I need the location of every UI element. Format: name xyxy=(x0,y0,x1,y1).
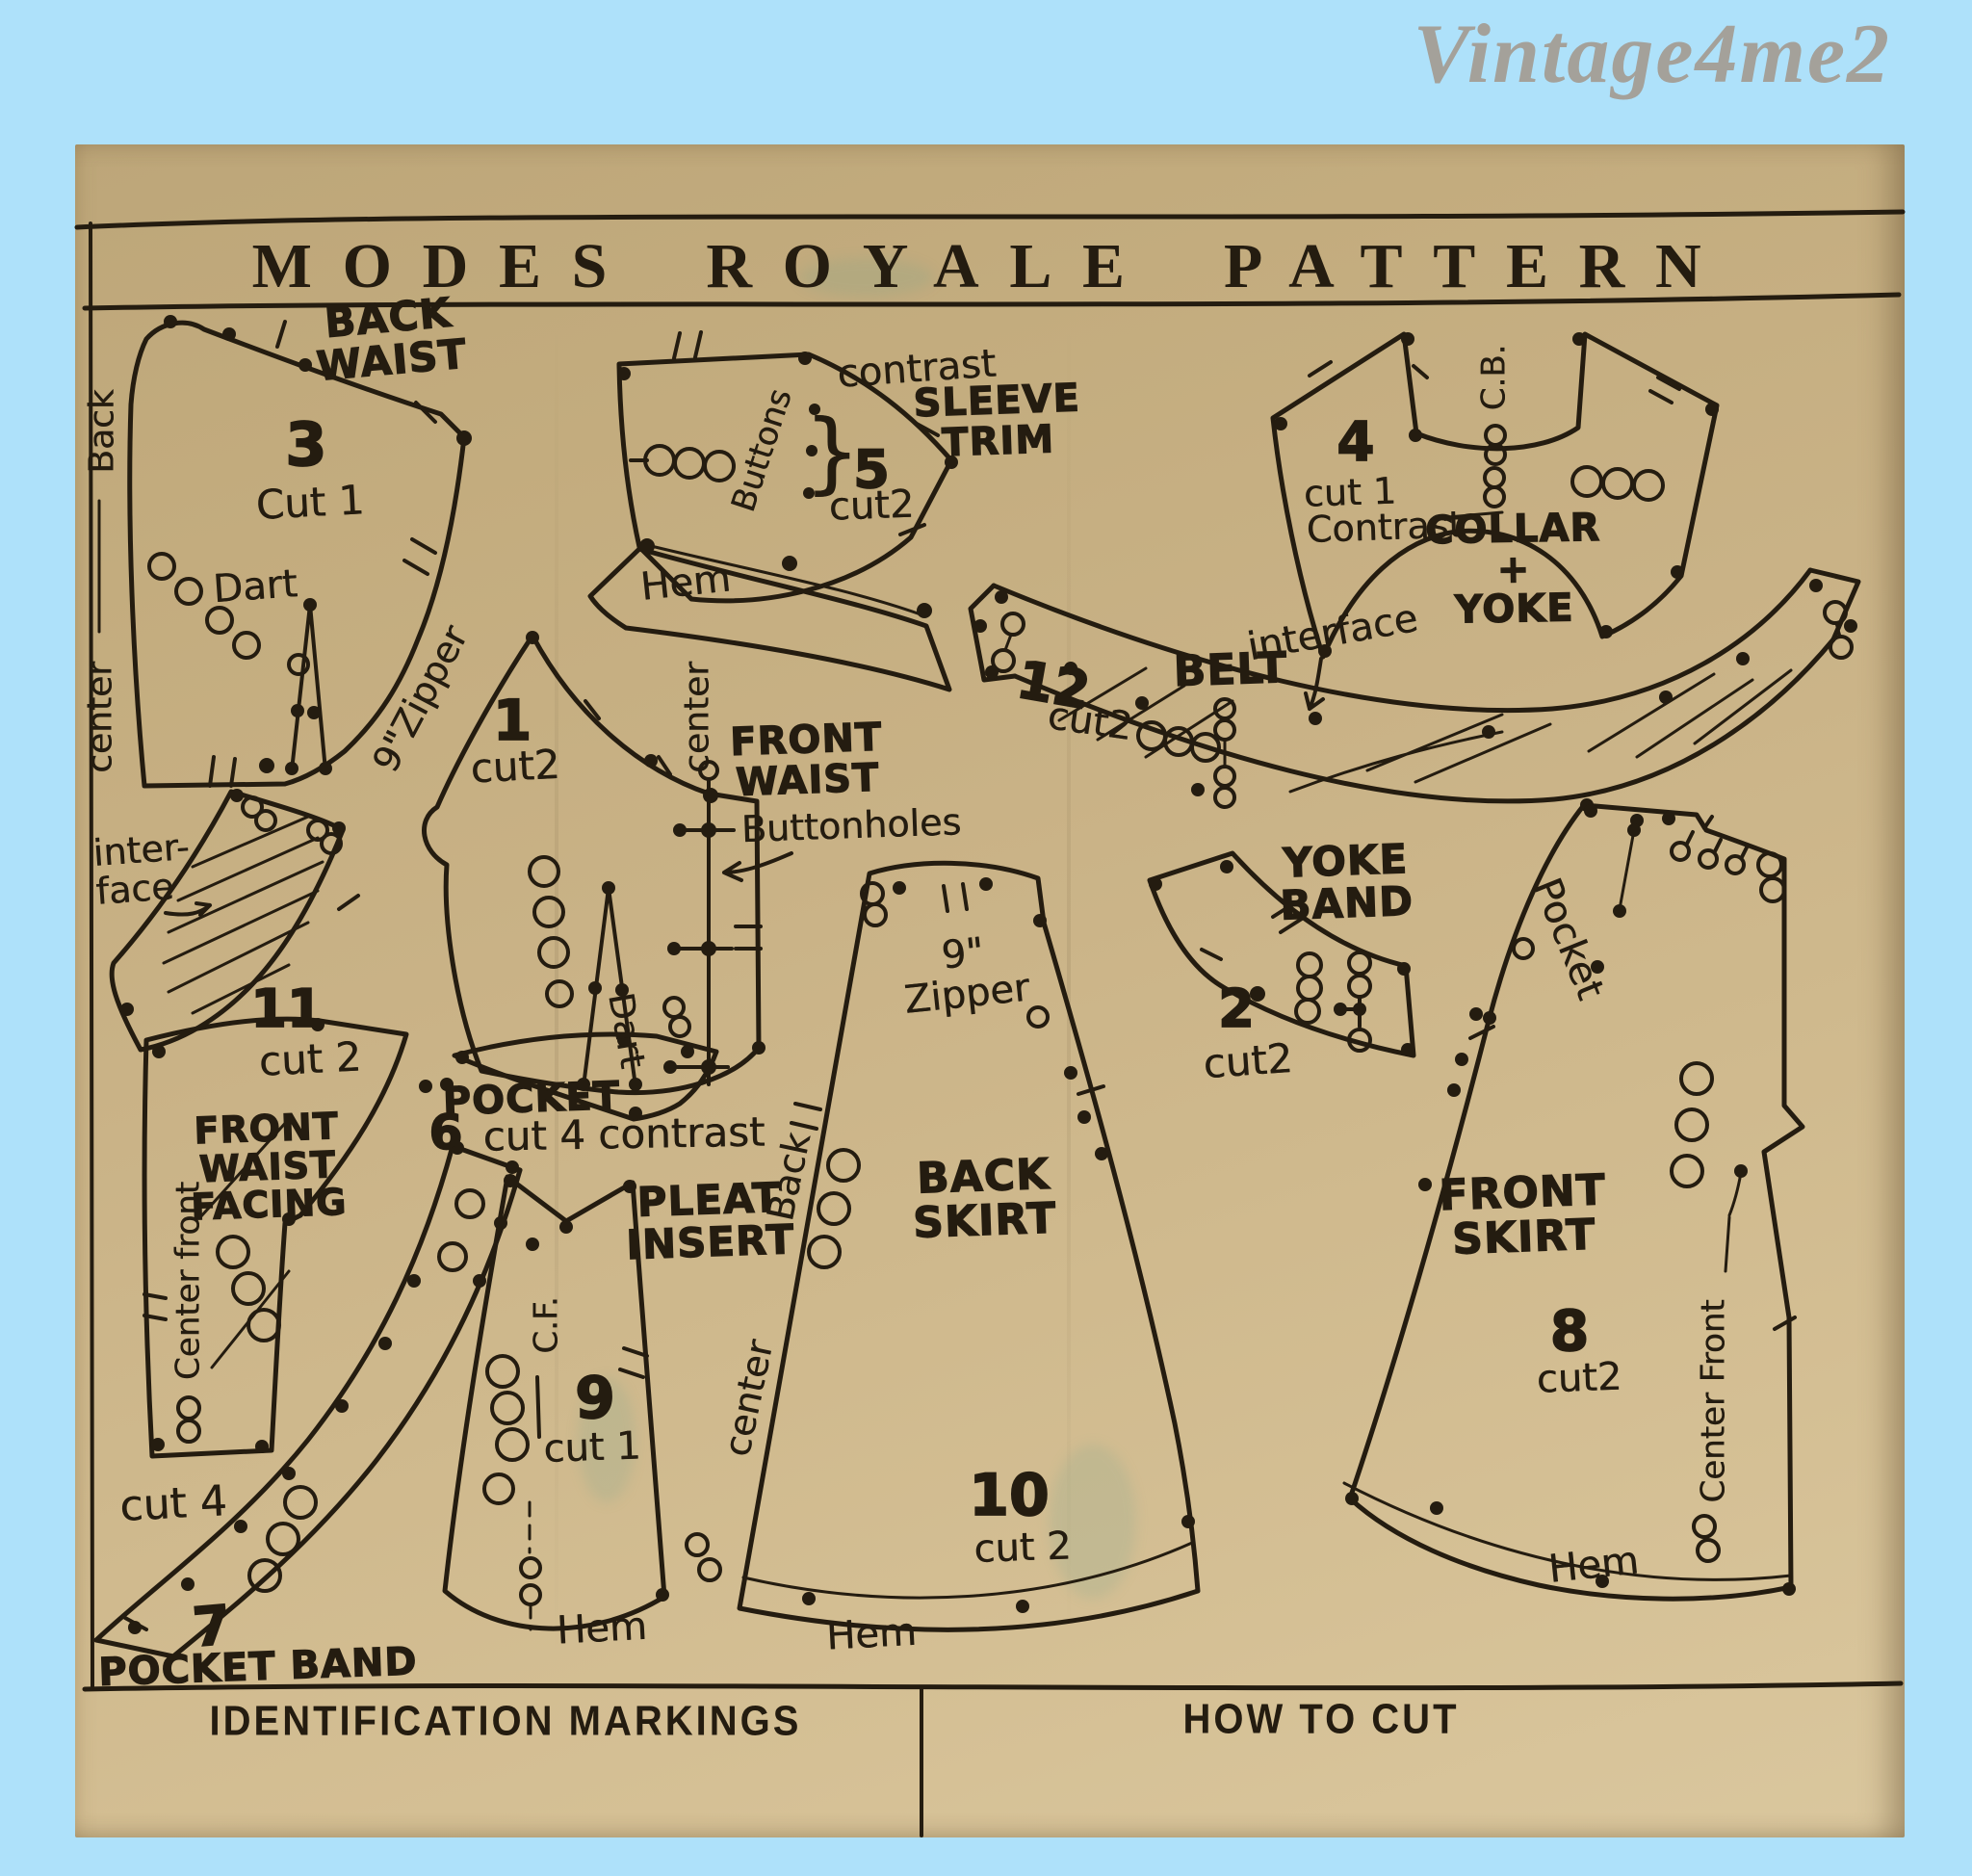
front-skirt-center-front: Center Front xyxy=(1697,1299,1730,1502)
front-skirt-hem: Hem xyxy=(1546,1541,1640,1590)
back-skirt-number: 10 xyxy=(969,1466,1050,1525)
pocket-band-cut: cut 4 xyxy=(118,1479,228,1529)
front-skirt-number: 8 xyxy=(1550,1302,1589,1360)
back-skirt-title: BACK SKIRT xyxy=(911,1153,1057,1246)
back-waist-title: BACK WAIST xyxy=(311,291,469,388)
interfacing-label: inter- face xyxy=(91,828,193,911)
sleeve-trim-title: SLEEVE TRIM xyxy=(913,378,1082,464)
front-waist-cut: cut2 xyxy=(469,743,560,790)
yoke-band-number: 2 xyxy=(1218,982,1255,1036)
back-skirt-zipper: 9" Zipper xyxy=(898,928,1031,1021)
back-skirt-hem: Hem xyxy=(825,1613,918,1657)
sleeve-trim-cut: cut2 xyxy=(828,485,915,529)
collar-yoke-title: COLLAR + YOKE xyxy=(1425,508,1602,632)
front-waist-center-label: center xyxy=(679,662,714,773)
interfacing-number: 11 xyxy=(250,982,323,1036)
interfacing-cut: cut 2 xyxy=(258,1035,362,1082)
front-waist-number: 1 xyxy=(493,691,532,749)
pleat-insert-cut: cut 1 xyxy=(543,1426,642,1470)
pocket-number: 6 xyxy=(429,1107,463,1158)
back-waist-cut: Cut 1 xyxy=(255,479,366,526)
footer-left-heading: IDENTIFICATION MARKINGS xyxy=(210,1699,802,1746)
facing-center-front: Center front xyxy=(171,1182,205,1380)
pleat-insert-number: 9 xyxy=(575,1368,615,1428)
front-skirt-title: FRONT SKIRT xyxy=(1439,1168,1608,1262)
scanned-pattern-sheet: Vintage4me2 xyxy=(0,0,1972,1876)
back-waist-edge-center: center xyxy=(82,662,117,773)
pleat-insert-cf: C.F. xyxy=(530,1296,563,1353)
footer-right-heading: HOW TO CUT xyxy=(1182,1697,1459,1744)
front-waist-facing-title: FRONT WAIST FACING xyxy=(188,1107,348,1227)
collar-yoke-cb: C.B. xyxy=(1477,345,1511,411)
back-waist-dart-label: Dart xyxy=(212,564,298,611)
collar-yoke-number: 4 xyxy=(1337,415,1375,471)
yoke-band-cut: cut2 xyxy=(1202,1037,1294,1085)
sleeve-trim-hem: Hem xyxy=(638,559,732,608)
front-skirt-cut: cut2 xyxy=(1536,1358,1622,1401)
back-waist-number: 3 xyxy=(285,414,326,476)
back-skirt-cut: cut 2 xyxy=(973,1526,1073,1570)
front-waist-title: FRONT WAIST xyxy=(730,718,885,804)
pocket-cut: cut 4 contrast xyxy=(482,1111,765,1159)
yoke-band-title: YOKE BAND xyxy=(1278,838,1414,926)
buttonholes-label: Buttonholes xyxy=(740,803,962,848)
back-waist-edge-back: Back xyxy=(84,389,119,473)
pleat-insert-hem: Hem xyxy=(556,1607,648,1652)
